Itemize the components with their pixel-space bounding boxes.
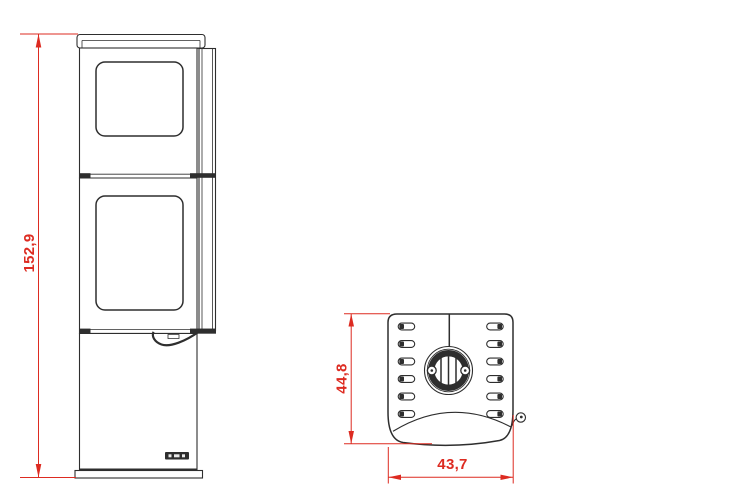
- width-value-label: 43,7: [437, 456, 467, 473]
- plinth-outline: [75, 471, 203, 479]
- band1-left-tab: [80, 173, 91, 178]
- vent-slot: [487, 393, 504, 400]
- top-handle-knob: [513, 413, 526, 425]
- depth-arrow-down: [349, 431, 355, 444]
- collar-screw-right: [461, 366, 470, 375]
- vent-slot: [398, 411, 415, 418]
- top-view: [388, 314, 526, 445]
- base-plinth: [75, 470, 203, 478]
- middle-window: [96, 196, 183, 310]
- vent-slot: [487, 411, 504, 418]
- vent-slot: [398, 358, 415, 365]
- technical-drawing-canvas: 152,9: [0, 0, 750, 500]
- vent-slot: [487, 376, 504, 383]
- depth-value-label: 44,8: [334, 363, 351, 393]
- width-arrow-left: [388, 475, 401, 480]
- vent-slot: [487, 358, 504, 365]
- upper-window: [96, 62, 183, 136]
- flue-collar: [425, 347, 473, 395]
- upper-junction-band: [80, 173, 217, 178]
- vent-slots-right: [487, 323, 504, 417]
- vent-slot: [398, 323, 415, 330]
- side-panel-strip: [197, 49, 216, 334]
- front-edge-arc: [394, 412, 511, 431]
- depth-arrow-up: [349, 314, 355, 327]
- height-arrow-down: [36, 464, 42, 478]
- stove-dimension-drawing: 152,9: [0, 0, 750, 500]
- collar-screw-left: [427, 366, 436, 375]
- top-plate-outline: [388, 314, 513, 445]
- cap-outline: [77, 35, 205, 49]
- vent-slot: [398, 341, 415, 348]
- vent-slot: [487, 323, 504, 330]
- vent-slot: [487, 341, 504, 348]
- dimension-height: 152,9: [20, 34, 78, 478]
- vent-slot: [398, 393, 415, 400]
- strip-bottom-cap: [198, 329, 217, 334]
- logo-badge: [165, 452, 189, 460]
- width-arrow-right: [501, 475, 514, 480]
- height-value-label: 152,9: [21, 233, 38, 272]
- stove-body-outline: [80, 48, 198, 470]
- band2-left-tab: [80, 329, 91, 334]
- height-arrow-up: [36, 34, 42, 48]
- handle-latch: [168, 335, 179, 339]
- vent-slots-left: [398, 323, 415, 417]
- dimension-depth: 44,8: [334, 314, 433, 444]
- top-plate-cap: [77, 35, 205, 49]
- front-view: [75, 35, 216, 479]
- vent-slot: [398, 376, 415, 383]
- dimension-width: 43,7: [388, 415, 513, 484]
